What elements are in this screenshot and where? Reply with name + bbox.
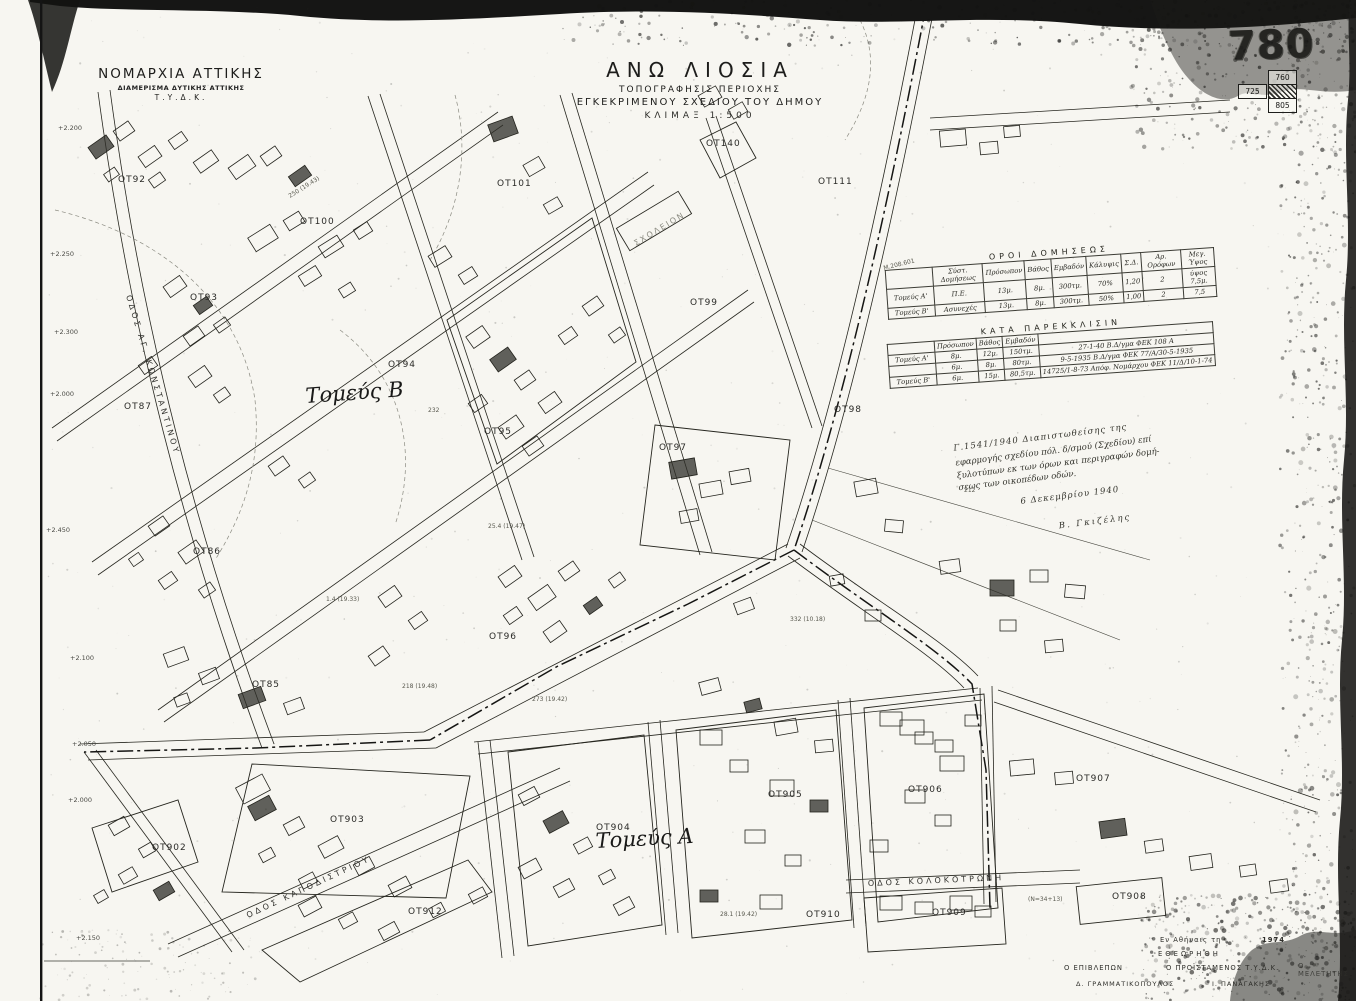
- noise-dot: [1350, 8, 1352, 10]
- noise-dot: [1287, 340, 1288, 341]
- noise-dot: [107, 229, 108, 230]
- noise-dot: [943, 792, 944, 793]
- noise-dot: [1171, 20, 1174, 23]
- noise-dot: [1003, 90, 1005, 92]
- noise-dot: [1244, 897, 1245, 898]
- noise-dot: [1329, 247, 1331, 249]
- noise-dot: [714, 26, 715, 27]
- noise-dot: [1204, 63, 1206, 65]
- noise-dot: [1323, 595, 1327, 599]
- noise-dot: [860, 41, 861, 42]
- noise-dot: [1310, 905, 1313, 908]
- noise-dot: [828, 136, 829, 137]
- noise-dot: [1334, 986, 1337, 989]
- noise-dot: [1305, 397, 1307, 399]
- noise-dot: [297, 520, 298, 521]
- noise-dot: [1238, 896, 1243, 901]
- noise-dot: [1307, 764, 1309, 766]
- noise-dot: [1330, 774, 1334, 778]
- noise-dot: [1314, 119, 1316, 121]
- noise-dot: [1041, 7, 1043, 9]
- noise-dot: [1334, 944, 1338, 948]
- noise-dot: [1305, 854, 1308, 857]
- noise-dot: [1293, 694, 1298, 699]
- noise-dot: [1341, 474, 1343, 476]
- noise-dot: [572, 38, 576, 42]
- noise-dot: [1353, 38, 1354, 39]
- noise-dot: [925, 870, 926, 871]
- noise-dot: [1166, 992, 1169, 995]
- noise-dot: [63, 709, 64, 710]
- noise-dot: [852, 312, 853, 313]
- noise-dot: [985, 316, 987, 318]
- measurement-annotation: (Ν=34+13): [1028, 896, 1063, 903]
- noise-dot: [1297, 124, 1300, 127]
- noise-dot: [734, 616, 735, 617]
- noise-dot: [66, 569, 68, 571]
- noise-dot: [1334, 108, 1335, 109]
- noise-dot: [439, 166, 440, 167]
- poi-label: ΣΧΟΛΕΙΟΝ: [632, 210, 686, 248]
- noise-dot: [261, 952, 262, 953]
- noise-dot: [1328, 607, 1330, 609]
- block-label: ΟΤ100: [300, 217, 335, 227]
- noise-dot: [1350, 922, 1353, 925]
- noise-dot: [1190, 894, 1193, 897]
- noise-dot: [1107, 201, 1109, 203]
- noise-dot: [737, 22, 738, 23]
- noise-dot: [492, 156, 494, 158]
- noise-dot: [198, 125, 199, 126]
- noise-dot: [1299, 151, 1304, 156]
- noise-dot: [1301, 925, 1305, 929]
- noise-dot: [582, 16, 584, 18]
- measurement-annotation: 273 (19.42): [532, 696, 567, 703]
- noise-dot: [1037, 115, 1038, 116]
- noise-dot: [946, 849, 948, 851]
- noise-dot: [166, 931, 169, 934]
- noise-dot: [1018, 42, 1021, 45]
- noise-dot: [1322, 357, 1325, 360]
- noise-dot: [1148, 305, 1149, 306]
- noise-dot: [961, 9, 963, 11]
- noise-dot: [273, 743, 275, 745]
- noise-dot: [516, 129, 517, 130]
- noise-dot: [1332, 499, 1335, 502]
- noise-dot: [1325, 347, 1327, 349]
- table-header-cell: Μεγ. Ύψος: [1180, 247, 1215, 268]
- noise-dot: [1334, 979, 1337, 982]
- building-footprint: [553, 878, 575, 897]
- noise-dot: [1225, 126, 1227, 128]
- noise-dot: [1344, 934, 1345, 935]
- noise-dot: [135, 960, 137, 962]
- noise-dot: [1173, 916, 1175, 918]
- noise-dot: [1301, 256, 1305, 260]
- noise-dot: [201, 982, 203, 984]
- noise-dot: [1336, 363, 1338, 365]
- noise-dot: [1189, 811, 1190, 812]
- noise-dot: [1326, 682, 1329, 685]
- noise-dot: [1309, 325, 1312, 328]
- noise-dot: [826, 11, 829, 14]
- measurement-annotation: 25.4 (19.47): [488, 523, 525, 530]
- building-footprint: [168, 131, 187, 149]
- noise-dot: [138, 971, 139, 972]
- noise-dot: [927, 133, 928, 134]
- noise-dot: [799, 677, 800, 678]
- building-footprint: [228, 154, 256, 179]
- noise-dot: [1298, 667, 1300, 669]
- noise-dot: [117, 409, 118, 410]
- noise-dot: [592, 690, 594, 692]
- noise-dot: [1325, 364, 1327, 366]
- noise-dot: [1207, 622, 1209, 624]
- noise-dot: [1133, 36, 1135, 38]
- noise-dot: [1298, 311, 1303, 316]
- noise-dot: [1161, 43, 1164, 46]
- noise-dot: [1314, 612, 1318, 616]
- noise-dot: [1337, 311, 1339, 313]
- noise-dot: [108, 979, 109, 980]
- noise-dot: [1297, 99, 1299, 101]
- noise-dot: [761, 317, 762, 318]
- noise-dot: [1312, 402, 1314, 404]
- noise-dot: [1264, 919, 1266, 921]
- noise-dot: [1181, 908, 1183, 910]
- noise-dot: [586, 669, 587, 670]
- noise-dot: [230, 939, 233, 942]
- noise-dot: [1343, 169, 1347, 173]
- noise-dot: [387, 243, 388, 244]
- noise-dot: [214, 529, 215, 530]
- noise-dot: [1287, 924, 1289, 926]
- noise-dot: [1296, 823, 1300, 827]
- noise-dot: [1091, 10, 1094, 13]
- noise-dot: [1283, 978, 1284, 979]
- noise-dot: [209, 958, 210, 959]
- noise-dot: [1214, 73, 1216, 75]
- noise-dot: [971, 70, 972, 71]
- noise-dot: [1340, 26, 1342, 28]
- noise-dot: [1330, 792, 1335, 797]
- noise-dot: [1124, 549, 1125, 550]
- noise-dot: [96, 299, 97, 300]
- noise-dot: [1247, 956, 1251, 960]
- noise-dot: [1336, 466, 1338, 468]
- noise-dot: [163, 599, 165, 601]
- noise-dot: [934, 36, 936, 38]
- building-footprint: [543, 620, 567, 642]
- noise-dot: [1309, 649, 1311, 651]
- noise-dot: [941, 450, 942, 451]
- noise-dot: [167, 947, 170, 950]
- noise-dot: [1318, 816, 1320, 818]
- noise-dot: [1225, 76, 1226, 77]
- noise-dot: [1101, 26, 1104, 29]
- noise-dot: [1281, 667, 1284, 670]
- noise-dot: [1134, 18, 1135, 19]
- noise-dot: [659, 159, 661, 161]
- noise-dot: [755, 274, 756, 275]
- noise-dot: [1289, 594, 1292, 597]
- noise-dot: [1193, 929, 1197, 933]
- noise-dot: [1316, 691, 1318, 693]
- noise-dot: [52, 932, 53, 933]
- noise-dot: [1198, 106, 1201, 109]
- noise-dot: [1313, 853, 1316, 856]
- noise-dot: [1332, 211, 1334, 213]
- noise-dot: [1315, 892, 1317, 894]
- noise-dot: [1306, 492, 1307, 493]
- noise-dot: [1299, 105, 1302, 108]
- noise-dot: [1307, 120, 1308, 121]
- building-footprint: [523, 156, 545, 176]
- noise-dot: [1282, 909, 1284, 911]
- noise-dot: [1324, 346, 1325, 347]
- noise-dot: [209, 923, 211, 925]
- noise-dot: [415, 287, 417, 289]
- noise-dot: [1288, 350, 1290, 352]
- noise-dot: [67, 939, 68, 940]
- noise-dot: [85, 942, 86, 943]
- noise-dot: [1099, 552, 1101, 554]
- noise-dot: [1087, 9, 1091, 13]
- building-footprint: [935, 815, 951, 826]
- noise-dot: [633, 177, 635, 179]
- noise-dot: [1257, 902, 1258, 903]
- noise-dot: [723, 481, 725, 483]
- noise-dot: [1294, 522, 1296, 524]
- noise-dot: [929, 812, 931, 814]
- noise-dot: [150, 456, 151, 457]
- noise-dot: [1301, 283, 1304, 286]
- noise-dot: [497, 94, 498, 95]
- noise-dot: [1296, 180, 1300, 184]
- noise-dot: [137, 988, 139, 990]
- building-footprint: [378, 585, 402, 607]
- noise-dot: [1318, 859, 1320, 861]
- noise-dot: [1341, 923, 1345, 927]
- noise-dot: [804, 171, 805, 172]
- noise-dot: [1207, 53, 1211, 57]
- noise-dot: [39, 997, 42, 1000]
- noise-dot: [646, 333, 647, 334]
- noise-dot: [125, 995, 127, 997]
- noise-dot: [793, 24, 795, 26]
- noise-dot: [1063, 11, 1065, 13]
- noise-dot: [859, 958, 860, 959]
- noise-dot: [309, 490, 311, 492]
- noise-dot: [1328, 720, 1331, 723]
- noise-dot: [1177, 924, 1178, 925]
- noise-dot: [1298, 788, 1303, 793]
- noise-dot: [1301, 213, 1302, 214]
- noise-dot: [1334, 153, 1338, 157]
- block-label: ΟΤ99: [690, 298, 718, 308]
- noise-dot: [1242, 12, 1244, 14]
- noise-dot: [710, 445, 712, 447]
- noise-dot: [1334, 141, 1336, 143]
- noise-dot: [683, 45, 684, 46]
- noise-dot: [670, 369, 671, 370]
- noise-dot: [1274, 122, 1278, 126]
- noise-dot: [761, 823, 762, 824]
- noise-dot: [1349, 217, 1350, 218]
- noise-dot: [1343, 374, 1347, 378]
- noise-dot: [1039, 1, 1040, 2]
- noise-dot: [802, 176, 803, 177]
- noise-dot: [406, 265, 408, 267]
- noise-dot: [1251, 20, 1253, 22]
- noise-dot: [1041, 18, 1042, 19]
- noise-dot: [536, 12, 537, 13]
- noise-dot: [160, 17, 162, 19]
- noise-dot: [1257, 929, 1260, 932]
- noise-dot: [1222, 96, 1223, 97]
- noise-dot: [666, 370, 667, 371]
- noise-dot: [1269, 918, 1274, 923]
- noise-dot: [604, 368, 605, 369]
- noise-dot: [667, 38, 668, 39]
- sector-label: Τομεύς Α: [595, 824, 694, 853]
- noise-dot: [1304, 181, 1309, 186]
- building-footprint: [148, 172, 165, 188]
- noise-dot: [1286, 944, 1287, 945]
- noise-dot: [1107, 753, 1108, 754]
- noise-dot: [594, 208, 595, 209]
- noise-dot: [1143, 969, 1144, 970]
- noise-dot: [1323, 87, 1327, 91]
- noise-dot: [309, 271, 310, 272]
- noise-dot: [672, 488, 673, 489]
- noise-dot: [1337, 174, 1339, 176]
- noise-dot: [1334, 534, 1335, 535]
- noise-dot: [1172, 8, 1176, 12]
- noise-dot: [1341, 990, 1342, 991]
- noise-dot: [1245, 144, 1247, 146]
- noise-dot: [1305, 927, 1309, 931]
- noise-dot: [1348, 904, 1349, 905]
- noise-dot: [1096, 993, 1097, 994]
- noise-dot: [1203, 961, 1204, 962]
- noise-dot: [1167, 974, 1168, 975]
- noise-dot: [88, 930, 91, 933]
- building-footprint: [129, 552, 144, 566]
- noise-dot: [1350, 893, 1352, 895]
- noise-dot: [1152, 27, 1155, 30]
- noise-dot: [1310, 217, 1313, 220]
- noise-dot: [1344, 583, 1345, 584]
- noise-dot: [1340, 625, 1343, 628]
- noise-dot: [970, 23, 971, 24]
- noise-dot: [459, 388, 460, 389]
- noise-dot: [930, 521, 932, 523]
- noise-dot: [101, 949, 103, 951]
- noise-dot: [1152, 910, 1157, 915]
- noise-dot: [922, 1, 925, 4]
- noise-dot: [1321, 116, 1323, 118]
- noise-dot: [1246, 131, 1248, 133]
- noise-dot: [1316, 879, 1321, 884]
- noise-dot: [86, 987, 89, 990]
- noise-dot: [788, 54, 790, 56]
- noise-dot: [1329, 850, 1330, 851]
- noise-dot: [124, 941, 126, 943]
- noise-dot: [1211, 894, 1216, 899]
- noise-dot: [1307, 368, 1311, 372]
- noise-dot: [1186, 39, 1189, 42]
- noise-dot: [1326, 107, 1327, 108]
- noise-dot: [116, 221, 117, 222]
- noise-dot: [1206, 43, 1210, 47]
- noise-dot: [1337, 919, 1340, 922]
- noise-dot: [432, 227, 434, 229]
- noise-dot: [1207, 403, 1208, 404]
- noise-dot: [1204, 977, 1206, 979]
- noise-dot: [945, 799, 946, 800]
- noise-dot: [284, 254, 286, 256]
- noise-dot: [968, 39, 971, 42]
- noise-dot: [1120, 6, 1122, 8]
- noise-dot: [1169, 944, 1173, 948]
- noise-dot: [1189, 13, 1190, 14]
- noise-dot: [1129, 41, 1132, 44]
- noise-dot: [941, 320, 942, 321]
- noise-dot: [230, 991, 232, 993]
- noise-dot: [1161, 37, 1163, 39]
- noise-dot: [1306, 950, 1307, 951]
- noise-dot: [751, 0, 754, 3]
- noise-dot: [1214, 14, 1218, 18]
- noise-dot: [494, 322, 496, 324]
- noise-dot: [1100, 54, 1102, 56]
- noise-dot: [1294, 735, 1298, 739]
- building-footprint: [730, 760, 748, 772]
- noise-dot: [1194, 898, 1196, 900]
- block-label: ΟΤ902: [152, 843, 187, 853]
- noise-dot: [1304, 806, 1305, 807]
- noise-dot: [1316, 301, 1318, 303]
- noise-dot: [1018, 819, 1019, 820]
- noise-dot: [1322, 775, 1325, 778]
- noise-dot: [1258, 9, 1260, 11]
- noise-dot: [1170, 83, 1174, 87]
- noise-dot: [1215, 124, 1219, 128]
- noise-dot: [1343, 40, 1346, 43]
- noise-dot: [1226, 945, 1227, 946]
- building-footprint: [1045, 639, 1064, 653]
- noise-dot: [1298, 726, 1300, 728]
- noise-dot: [1289, 936, 1290, 937]
- noise-dot: [1105, 25, 1108, 28]
- noise-dot: [1163, 921, 1165, 923]
- noise-dot: [1349, 781, 1352, 784]
- noise-dot: [108, 181, 110, 183]
- building-footprint: [518, 858, 542, 879]
- noise-dot: [1319, 73, 1320, 74]
- noise-dot: [1319, 682, 1321, 684]
- noise-dot: [1160, 75, 1161, 76]
- building-footprint: [1009, 759, 1034, 776]
- noise-dot: [137, 30, 138, 31]
- noise-dot: [1176, 958, 1181, 963]
- noise-dot: [1151, 903, 1155, 907]
- noise-dot: [1339, 39, 1340, 40]
- noise-dot: [1351, 613, 1353, 615]
- noise-dot: [1234, 921, 1239, 926]
- noise-dot: [613, 233, 615, 235]
